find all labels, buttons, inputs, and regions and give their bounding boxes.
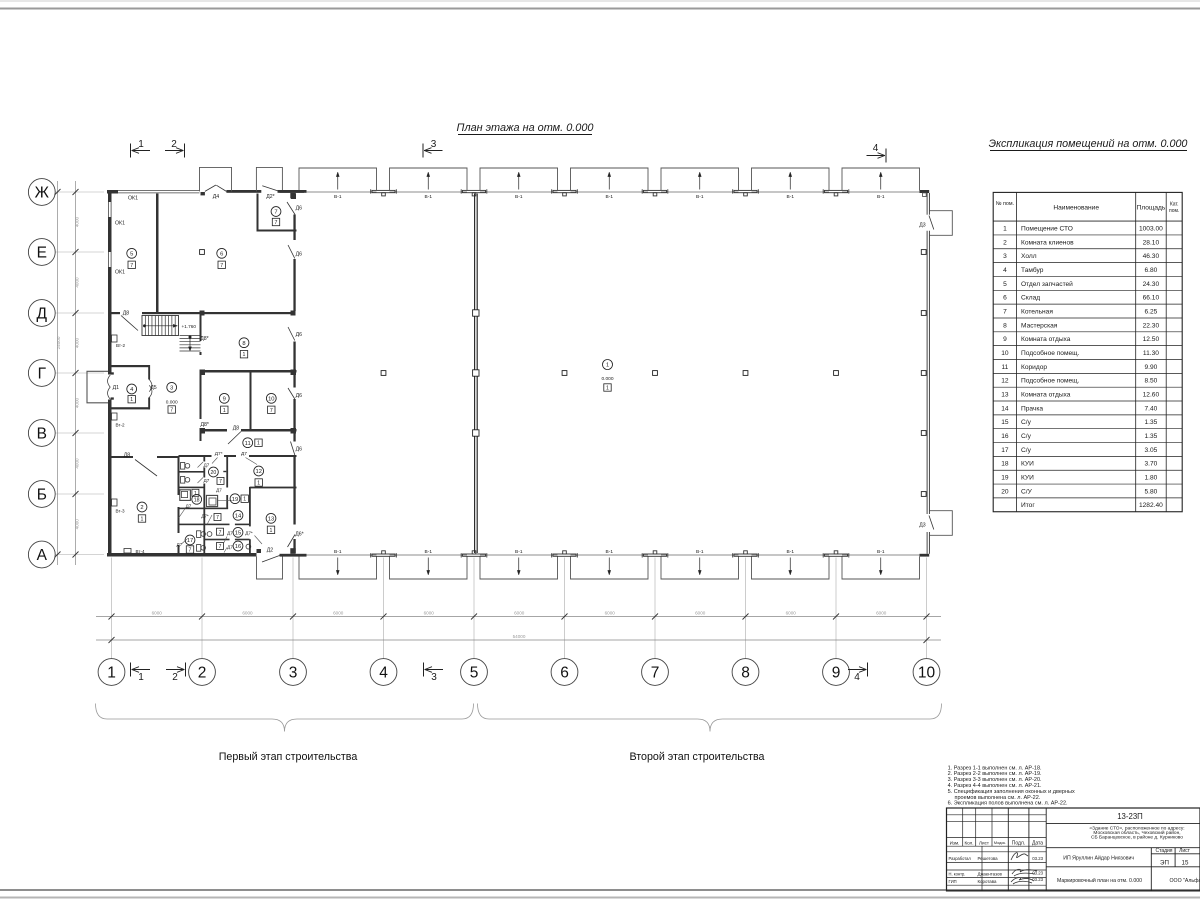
svg-text:Н. контр.: Н. контр. (949, 872, 966, 877)
svg-text:Лист: Лист (979, 840, 990, 845)
svg-text:8: 8 (242, 341, 245, 347)
svg-text:В-1: В-1 (515, 194, 523, 200)
svg-text:9.90: 9.90 (1144, 364, 1157, 371)
svg-text:1.35: 1.35 (1144, 419, 1157, 426)
svg-text:В-1: В-1 (787, 194, 795, 200)
svg-text:3.70: 3.70 (1144, 461, 1157, 468)
svg-text:13: 13 (1001, 392, 1009, 399)
svg-text:Итог: Итог (1021, 502, 1035, 509)
svg-text:Г: Г (38, 366, 47, 383)
svg-text:5.80: 5.80 (1144, 488, 1157, 495)
svg-text:1: 1 (257, 441, 260, 447)
svg-text:4000: 4000 (74, 397, 79, 408)
svg-text:Д7*: Д7* (215, 451, 223, 457)
svg-text:Коридор: Коридор (1021, 364, 1047, 371)
svg-text:15: 15 (1001, 419, 1009, 426)
svg-text:03.23: 03.23 (1032, 870, 1043, 875)
svg-text:В-1: В-1 (877, 549, 885, 555)
svg-text:Д7: Д7 (204, 478, 210, 483)
svg-text:Тамбур: Тамбур (1021, 266, 1044, 274)
svg-text:6000: 6000 (242, 610, 253, 615)
svg-text:7: 7 (130, 263, 133, 269)
svg-text:7: 7 (219, 479, 222, 485)
svg-text:8: 8 (741, 665, 750, 682)
svg-text:С/У: С/У (1021, 488, 1033, 495)
svg-text:ИП Яруллин Айдар Ниязович: ИП Яруллин Айдар Ниязович (1063, 854, 1134, 861)
svg-text:20: 20 (211, 470, 217, 476)
svg-text:14: 14 (235, 513, 242, 519)
svg-text:3: 3 (1003, 253, 1007, 260)
svg-text:1: 1 (270, 528, 273, 534)
svg-text:5: 5 (470, 665, 479, 682)
svg-text:пом.: пом. (1169, 208, 1179, 214)
svg-text:12.60: 12.60 (1143, 392, 1160, 399)
svg-text:Первый этап строительства: Первый этап строительства (219, 751, 358, 763)
svg-text:22.30: 22.30 (1143, 322, 1160, 329)
svg-text:Комната клиенов: Комната клиенов (1021, 239, 1074, 246)
svg-text:7: 7 (189, 548, 192, 554)
svg-text:6000: 6000 (152, 610, 163, 615)
svg-text:Вт-2: Вт-2 (115, 423, 125, 428)
svg-text:Второй этап строительства: Второй этап строительства (629, 751, 764, 763)
svg-text:ГИП: ГИП (949, 879, 957, 884)
svg-text:ЭП: ЭП (1160, 860, 1169, 867)
svg-text:1: 1 (243, 497, 246, 503)
svg-text:4: 4 (130, 387, 134, 393)
svg-text:Д8*: Д8* (201, 422, 209, 428)
svg-text:В-1: В-1 (334, 549, 342, 555)
svg-text:№ пом.: № пом. (996, 201, 1014, 207)
svg-text:54000: 54000 (513, 634, 526, 639)
svg-text:6.25: 6.25 (1144, 308, 1157, 315)
svg-text:1003.00: 1003.00 (1139, 225, 1163, 232)
svg-text:2: 2 (172, 672, 178, 683)
svg-text:3: 3 (289, 665, 298, 682)
svg-text:Д7: Д7 (227, 531, 233, 536)
svg-text:ОК1: ОК1 (128, 196, 138, 202)
svg-text:В-1: В-1 (425, 194, 433, 200)
svg-text:4: 4 (379, 665, 388, 682)
svg-text:6000: 6000 (424, 610, 435, 615)
svg-text:Е: Е (37, 245, 47, 262)
svg-text:7: 7 (1003, 308, 1007, 315)
svg-text:12.50: 12.50 (1143, 336, 1160, 343)
svg-text:19: 19 (232, 497, 238, 503)
svg-text:Подл.: Подл. (1012, 840, 1026, 846)
svg-text:1.80: 1.80 (1144, 475, 1157, 482)
svg-text:6: 6 (220, 251, 223, 257)
svg-text:Модок.: Модок. (994, 841, 1006, 845)
svg-text:6000: 6000 (786, 610, 797, 615)
svg-text:1: 1 (606, 363, 609, 369)
svg-text:12: 12 (1001, 378, 1009, 385)
svg-text:ООО "Альфа: ООО "Альфа (1170, 878, 1200, 884)
svg-text:15: 15 (235, 530, 241, 536)
svg-text:Д8: Д8 (123, 311, 130, 317)
svg-text:С/у: С/у (1021, 433, 1032, 440)
svg-text:План этажа на отм. 0.000: План этажа на отм. 0.000 (457, 122, 594, 134)
svg-text:Д4: Д4 (213, 194, 220, 200)
svg-text:7: 7 (219, 530, 222, 536)
svg-text:Д7: Д7 (241, 451, 247, 457)
svg-text:10: 10 (268, 396, 274, 402)
svg-text:Д: Д (37, 306, 48, 323)
svg-text:6: 6 (560, 665, 569, 682)
svg-text:9: 9 (223, 396, 226, 402)
svg-text:ОК1: ОК1 (115, 270, 125, 276)
svg-text:6000: 6000 (695, 610, 706, 615)
svg-text:Прачка: Прачка (1021, 405, 1043, 412)
svg-text:7.40: 7.40 (1144, 405, 1157, 412)
svg-text:Д5: Д5 (150, 385, 157, 391)
svg-text:Маркировочный план на отм. 0.0: Маркировочный план на отм. 0.000 (1057, 877, 1142, 884)
svg-text:2: 2 (171, 139, 177, 150)
svg-text:Лист: Лист (1179, 848, 1191, 854)
svg-text:Изм.: Изм. (950, 840, 960, 845)
svg-text:Вт-3: Вт-3 (115, 509, 125, 514)
svg-text:19: 19 (1001, 475, 1009, 482)
svg-text:Д7: Д7 (204, 463, 210, 468)
svg-text:В-1: В-1 (606, 194, 614, 200)
svg-text:16: 16 (235, 544, 241, 550)
svg-text:Джаентазов: Джаентазов (978, 872, 1003, 877)
svg-text:Разработал: Разработал (949, 856, 972, 861)
svg-text:17: 17 (187, 538, 193, 544)
svg-text:ОК1: ОК1 (115, 221, 125, 227)
svg-text:16: 16 (1001, 433, 1009, 440)
svg-text:Д6: Д6 (296, 332, 303, 338)
svg-text:В-1: В-1 (696, 194, 704, 200)
svg-text:18: 18 (1001, 461, 1009, 468)
svg-text:8: 8 (1003, 322, 1007, 329)
svg-text:9: 9 (832, 665, 841, 682)
svg-text:Д8: Д8 (124, 453, 131, 459)
svg-text:10: 10 (1001, 350, 1009, 357)
svg-text:7: 7 (220, 263, 223, 269)
svg-text:Д6: Д6 (296, 252, 303, 258)
svg-text:11: 11 (245, 441, 251, 447)
svg-text:1282.40: 1282.40 (1139, 502, 1163, 509)
svg-text:В-1: В-1 (334, 194, 342, 200)
svg-text:46.30: 46.30 (1143, 253, 1160, 260)
svg-text:Д2: Д2 (267, 548, 274, 554)
svg-text:В-1: В-1 (787, 549, 795, 555)
svg-text:17: 17 (1001, 447, 1009, 454)
svg-text:13-23П: 13-23П (1117, 812, 1143, 821)
svg-text:Котельная: Котельная (1021, 308, 1053, 315)
svg-text:В-1: В-1 (877, 194, 885, 200)
svg-text:Кат.: Кат. (1170, 202, 1179, 208)
svg-text:1: 1 (223, 408, 226, 414)
svg-text:1: 1 (141, 517, 144, 523)
svg-text:8.50: 8.50 (1144, 378, 1157, 385)
svg-text:1: 1 (243, 352, 246, 358)
svg-text:С/у: С/у (1021, 419, 1032, 426)
svg-text:Кол.: Кол. (964, 840, 973, 845)
svg-text:Комната отдыха: Комната отдыха (1021, 392, 1071, 399)
svg-text:В-1: В-1 (696, 549, 704, 555)
svg-text:3: 3 (170, 385, 173, 391)
svg-text:2: 2 (198, 665, 207, 682)
svg-text:66.10: 66.10 (1143, 295, 1160, 302)
svg-text:+1.760: +1.760 (182, 324, 197, 329)
svg-text:11: 11 (1001, 364, 1008, 371)
svg-text:Д7*: Д7* (201, 514, 209, 519)
svg-text:Д6: Д6 (296, 393, 303, 399)
svg-text:Комната отдыха: Комната отдыха (1021, 336, 1071, 343)
svg-text:6000: 6000 (605, 610, 616, 615)
svg-text:2: 2 (1003, 239, 1007, 246)
svg-text:В-1: В-1 (515, 549, 523, 555)
svg-text:3.05: 3.05 (1144, 447, 1157, 454)
svg-text:Д6: Д6 (296, 447, 303, 453)
svg-text:1: 1 (1003, 225, 1007, 232)
svg-text:Отдел запчастей: Отдел запчастей (1021, 280, 1073, 288)
svg-text:Д1: Д1 (113, 385, 120, 391)
svg-text:Мастерская: Мастерская (1021, 322, 1058, 329)
svg-text:03.23: 03.23 (1032, 877, 1043, 882)
svg-text:Д6: Д6 (296, 206, 303, 212)
svg-text:3: 3 (431, 672, 437, 683)
svg-text:24.30: 24.30 (1143, 281, 1160, 288)
svg-text:Д7: Д7 (216, 488, 222, 493)
svg-text:Дата: Дата (1032, 840, 1043, 846)
svg-text:Подсобное помещ.: Подсобное помещ. (1021, 349, 1080, 357)
svg-text:2: 2 (140, 505, 143, 511)
svg-text:Экспликация помещений на отм.: Экспликация помещений на отм. 0.000 (989, 138, 1188, 150)
svg-text:15: 15 (1182, 860, 1189, 867)
svg-text:Вт-4: Вт-4 (135, 549, 145, 554)
svg-text:Коротава: Коротава (978, 879, 997, 884)
svg-text:1: 1 (107, 665, 116, 682)
svg-text:1.35: 1.35 (1144, 433, 1157, 440)
svg-text:1: 1 (606, 386, 609, 392)
svg-text:7: 7 (219, 544, 222, 550)
svg-text:6000: 6000 (876, 610, 887, 615)
svg-text:4000: 4000 (74, 458, 79, 469)
svg-text:4: 4 (854, 672, 860, 683)
svg-text:Д6*: Д6* (295, 532, 303, 538)
svg-text:Д3: Д3 (919, 222, 926, 228)
svg-text:Ж: Ж (35, 185, 50, 202)
svg-text:14: 14 (1001, 405, 1009, 412)
svg-text:Решетова: Решетова (978, 856, 999, 861)
svg-text:1: 1 (138, 672, 144, 683)
svg-text:7: 7 (270, 408, 273, 414)
svg-text:6.80: 6.80 (1144, 267, 1157, 274)
svg-text:КУИ: КУИ (1021, 475, 1034, 482)
svg-text:28.10: 28.10 (1143, 239, 1160, 246)
svg-text:0.000: 0.000 (166, 399, 178, 405)
svg-text:Склад: Склад (1021, 295, 1040, 302)
svg-text:Д7: Д7 (177, 542, 183, 547)
svg-text:12: 12 (255, 469, 261, 475)
svg-text:В-1: В-1 (425, 549, 433, 555)
svg-text:СБ Баранцевское, в районе д. К: СБ Баранцевское, в районе д. Курниково (1091, 833, 1183, 840)
svg-text:Б: Б (37, 487, 47, 504)
svg-text:Д7*: Д7* (245, 531, 253, 536)
svg-text:1: 1 (194, 491, 197, 497)
svg-text:Д8*: Д8* (200, 336, 208, 342)
svg-text:6000: 6000 (514, 610, 525, 615)
svg-text:0.000: 0.000 (601, 376, 613, 382)
svg-text:Стадия: Стадия (1155, 848, 1172, 854)
svg-text:4: 4 (873, 143, 879, 154)
svg-text:10: 10 (918, 665, 936, 682)
svg-text:1: 1 (138, 139, 144, 150)
svg-text:Д8: Д8 (233, 426, 240, 432)
svg-text:6. Экспликация полов выполнена: 6. Экспликация полов выполнена см. л. АР… (948, 801, 1068, 807)
svg-text:Вт-2: Вт-2 (116, 343, 126, 348)
svg-text:18: 18 (194, 497, 200, 503)
svg-text:5: 5 (1003, 281, 1007, 288)
svg-text:7: 7 (651, 665, 660, 682)
svg-text:7: 7 (274, 210, 277, 216)
svg-text:4000: 4000 (74, 216, 79, 227)
svg-text:4000: 4000 (74, 277, 79, 288)
svg-text:1: 1 (257, 481, 260, 487)
svg-text:КУИ: КУИ (1021, 461, 1034, 468)
svg-text:9: 9 (1003, 336, 1007, 343)
svg-text:4: 4 (1003, 267, 1007, 274)
svg-text:7: 7 (170, 408, 173, 414)
svg-text:6000: 6000 (333, 610, 344, 615)
svg-text:Подсобное помещ.: Подсобное помещ. (1021, 377, 1080, 385)
svg-text:Д7: Д7 (186, 504, 192, 509)
svg-text:11.30: 11.30 (1143, 350, 1159, 357)
svg-text:Площадь: Площадь (1137, 205, 1166, 212)
svg-text:Холл: Холл (1021, 253, 1037, 260)
svg-text:Наименование: Наименование (1053, 205, 1099, 212)
svg-text:С/у: С/у (1021, 447, 1032, 454)
svg-text:Помещение СТО: Помещение СТО (1021, 225, 1073, 232)
svg-text:4000: 4000 (74, 519, 79, 530)
svg-text:7: 7 (216, 515, 219, 521)
svg-text:4000: 4000 (74, 337, 79, 348)
svg-text:3: 3 (431, 139, 437, 150)
svg-text:5: 5 (130, 251, 133, 257)
svg-text:6: 6 (1003, 295, 1007, 302)
svg-text:03.23: 03.23 (1032, 856, 1043, 861)
svg-text:В: В (37, 426, 47, 443)
svg-text:Д7: Д7 (227, 545, 233, 550)
svg-text:Д2*: Д2* (266, 194, 274, 200)
svg-text:13: 13 (268, 516, 274, 522)
svg-text:1: 1 (130, 397, 133, 403)
svg-text:В-1: В-1 (606, 549, 614, 555)
svg-text:Д3: Д3 (919, 522, 926, 528)
svg-text:А: А (37, 547, 48, 564)
svg-text:20: 20 (1001, 488, 1009, 495)
svg-text:24000: 24000 (56, 336, 61, 349)
svg-text:7: 7 (275, 220, 278, 226)
